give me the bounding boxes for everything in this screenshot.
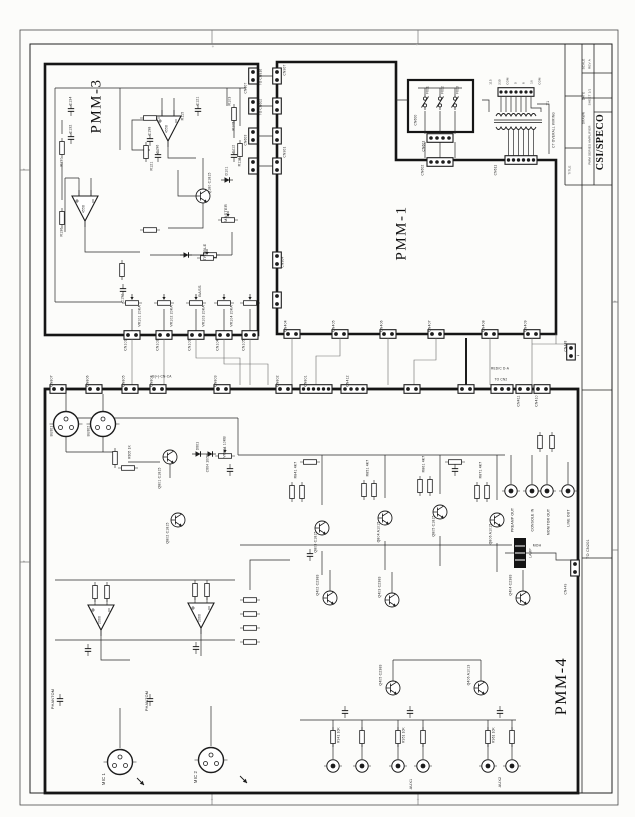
schematic-sheet: TITLEDRAWNDATESCALEREV ASHEET 1/1PMM SER… [0, 0, 635, 817]
mic2-xlr-connector [195, 748, 228, 773]
connector [380, 330, 396, 339]
bus-crossing-wires [132, 334, 575, 385]
connector [571, 560, 580, 576]
connector [428, 330, 444, 339]
connector [249, 98, 258, 114]
transformer-primary [496, 114, 536, 117]
connector [273, 292, 282, 308]
rca-jack [502, 485, 520, 497]
pmm4-edge-connectors [50, 385, 579, 576]
pmm3-resistors [60, 104, 243, 280]
lamp-module [514, 538, 526, 568]
rca-jack [324, 760, 342, 772]
pmm3-pots [122, 211, 260, 305]
connector [156, 331, 172, 340]
pmm4-title: PMM-4 [554, 657, 570, 715]
connector [332, 330, 348, 339]
connector [273, 158, 282, 174]
fuse-symbol [437, 94, 444, 110]
diode-symbol [221, 177, 233, 183]
rca-jack [353, 760, 371, 772]
power-transformer [482, 88, 549, 165]
rca-jack [389, 760, 407, 772]
company-name: CSI/SPECO [596, 114, 606, 170]
connector [273, 252, 282, 268]
pmm1-board [277, 62, 556, 334]
connector [482, 330, 498, 339]
connector [505, 156, 537, 165]
din-connector [50, 412, 83, 437]
fuse-box [396, 80, 473, 166]
rca-jack [479, 760, 497, 772]
transformer-secondary [496, 127, 536, 130]
connector [427, 134, 453, 143]
transistor-symbol [196, 189, 210, 203]
pmm4-capacitors [57, 464, 503, 718]
fuse-symbol [422, 94, 429, 110]
diode-symbol [180, 252, 192, 258]
diode-symbol [192, 451, 204, 457]
connector [284, 330, 300, 339]
diode-symbol [204, 451, 216, 457]
connector [498, 88, 534, 97]
rca-jack [538, 485, 556, 497]
pmm4-outline [45, 389, 578, 793]
connector [524, 330, 540, 339]
connector [567, 344, 576, 360]
connector [216, 331, 232, 340]
transformer-core [494, 120, 542, 123]
connector [242, 331, 258, 340]
rca-jack [503, 760, 521, 772]
fuse-symbol [452, 94, 459, 110]
connector [273, 68, 282, 84]
opamp-symbol [72, 190, 98, 227]
pmm1-outline [277, 62, 556, 334]
pmm1-title: PMM-1 [395, 205, 410, 260]
din-connector [87, 412, 120, 437]
pmm3-board [45, 64, 260, 335]
connector [249, 68, 258, 84]
connector [124, 331, 140, 340]
connector [249, 128, 258, 144]
pmm3-title: PMM-3 [90, 78, 105, 133]
rca-jack [414, 760, 432, 772]
mic1-xlr-connector [104, 750, 137, 775]
opamp-symbol [155, 110, 181, 147]
pmm4-board [45, 385, 579, 793]
connector [249, 158, 258, 174]
connector [427, 158, 453, 167]
connector [273, 128, 282, 144]
opamp-symbol [188, 597, 214, 634]
trimmer-symbol [215, 447, 235, 458]
connector [188, 331, 204, 340]
connector [273, 98, 282, 114]
ground-arrow [240, 776, 247, 783]
pmm4-resistors [93, 432, 555, 747]
opamp-symbol [88, 599, 114, 636]
ground-arrow [137, 778, 144, 785]
pmm4-wiring [55, 394, 570, 759]
rca-jack [559, 485, 577, 497]
